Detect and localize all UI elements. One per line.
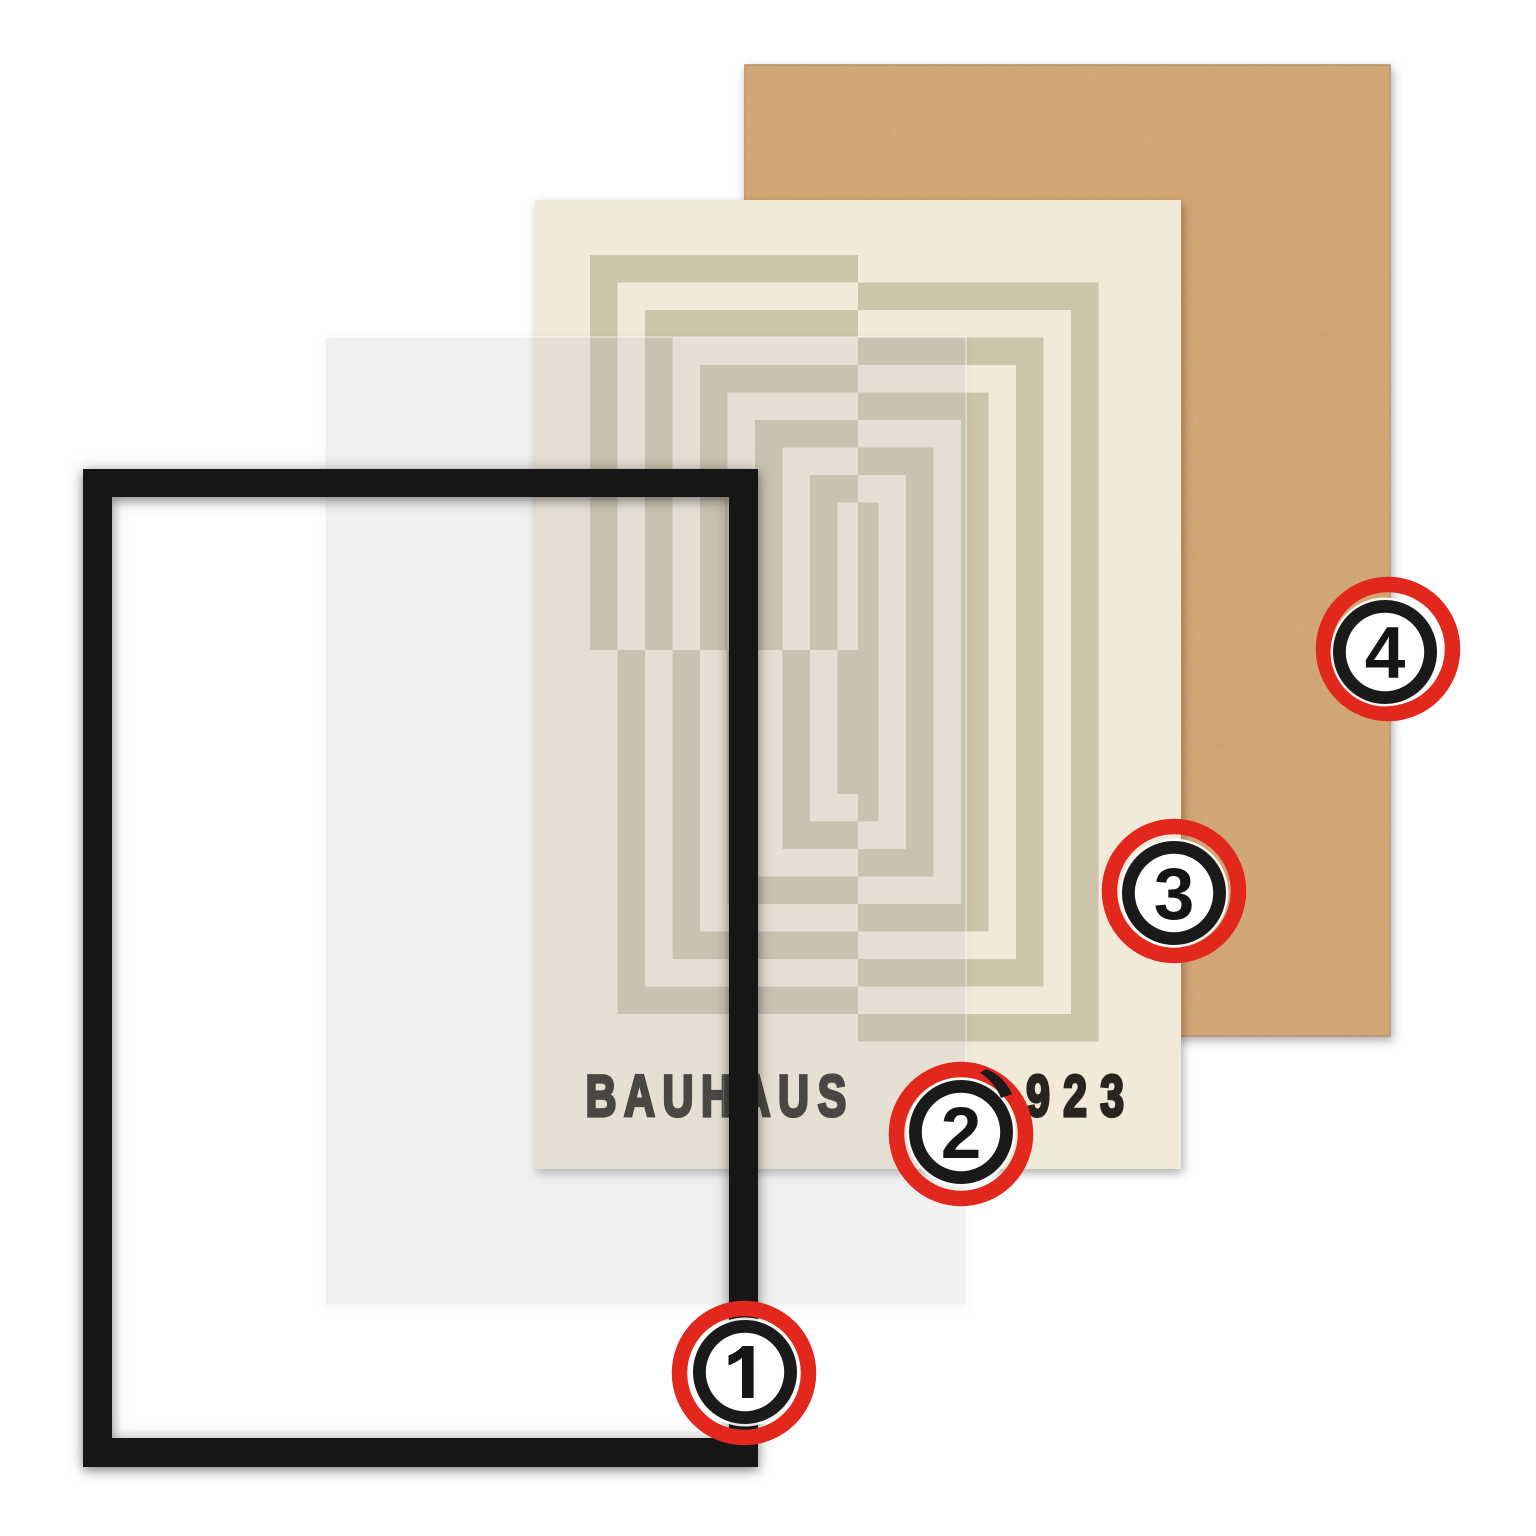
svg-text:2: 2 xyxy=(941,1093,982,1174)
svg-text:3: 3 xyxy=(1100,1064,1124,1129)
svg-text:2: 2 xyxy=(1063,1064,1087,1129)
svg-text:4: 4 xyxy=(1365,613,1406,694)
svg-text:3: 3 xyxy=(1154,854,1195,935)
